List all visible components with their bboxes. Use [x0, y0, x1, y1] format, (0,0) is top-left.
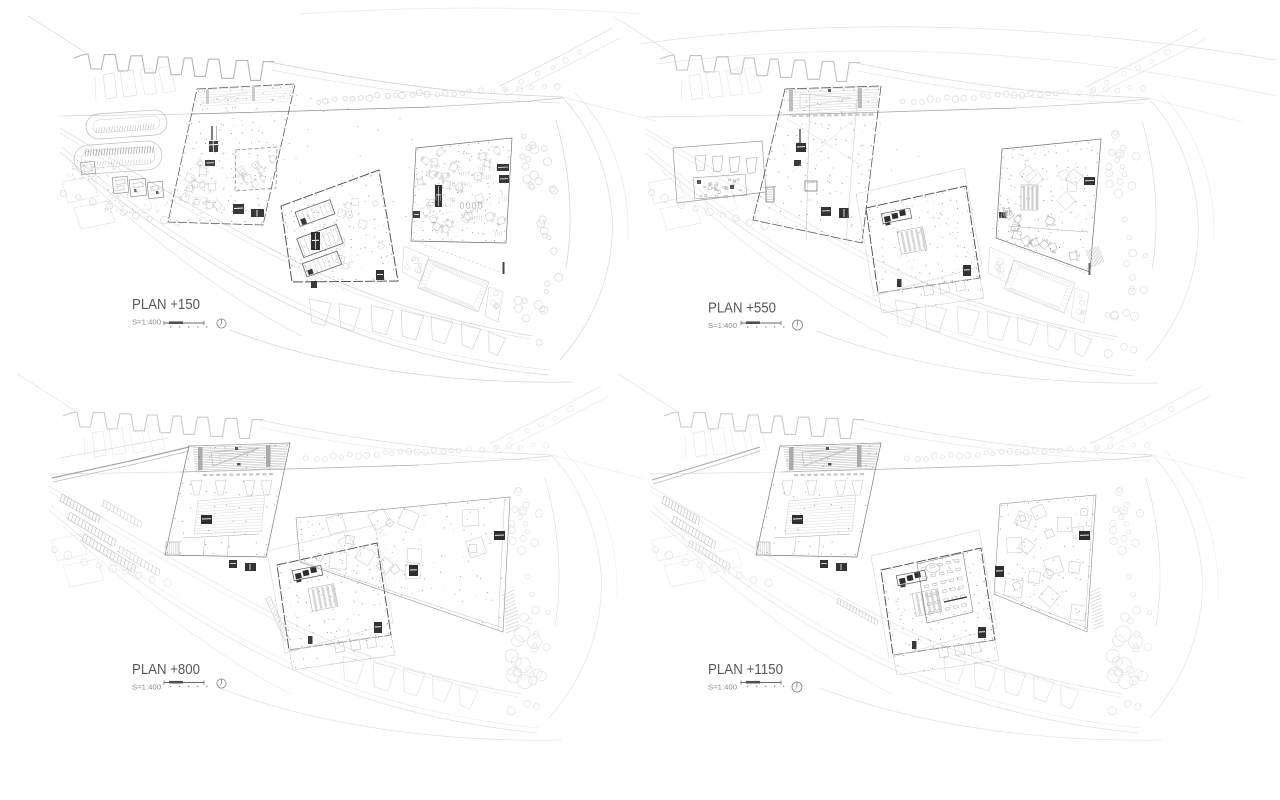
svg-text:S=1:400: S=1:400 [132, 683, 161, 692]
svg-text:PLAN +150: PLAN +150 [132, 296, 200, 313]
svg-text:PLAN +800: PLAN +800 [132, 661, 200, 678]
svg-text:PLAN +1150: PLAN +1150 [708, 661, 783, 678]
svg-text:S=1:400: S=1:400 [708, 321, 737, 330]
svg-text:S=1:400: S=1:400 [708, 683, 737, 692]
svg-text:S=1:400: S=1:400 [132, 318, 161, 327]
svg-text:PLAN +550: PLAN +550 [708, 300, 776, 317]
